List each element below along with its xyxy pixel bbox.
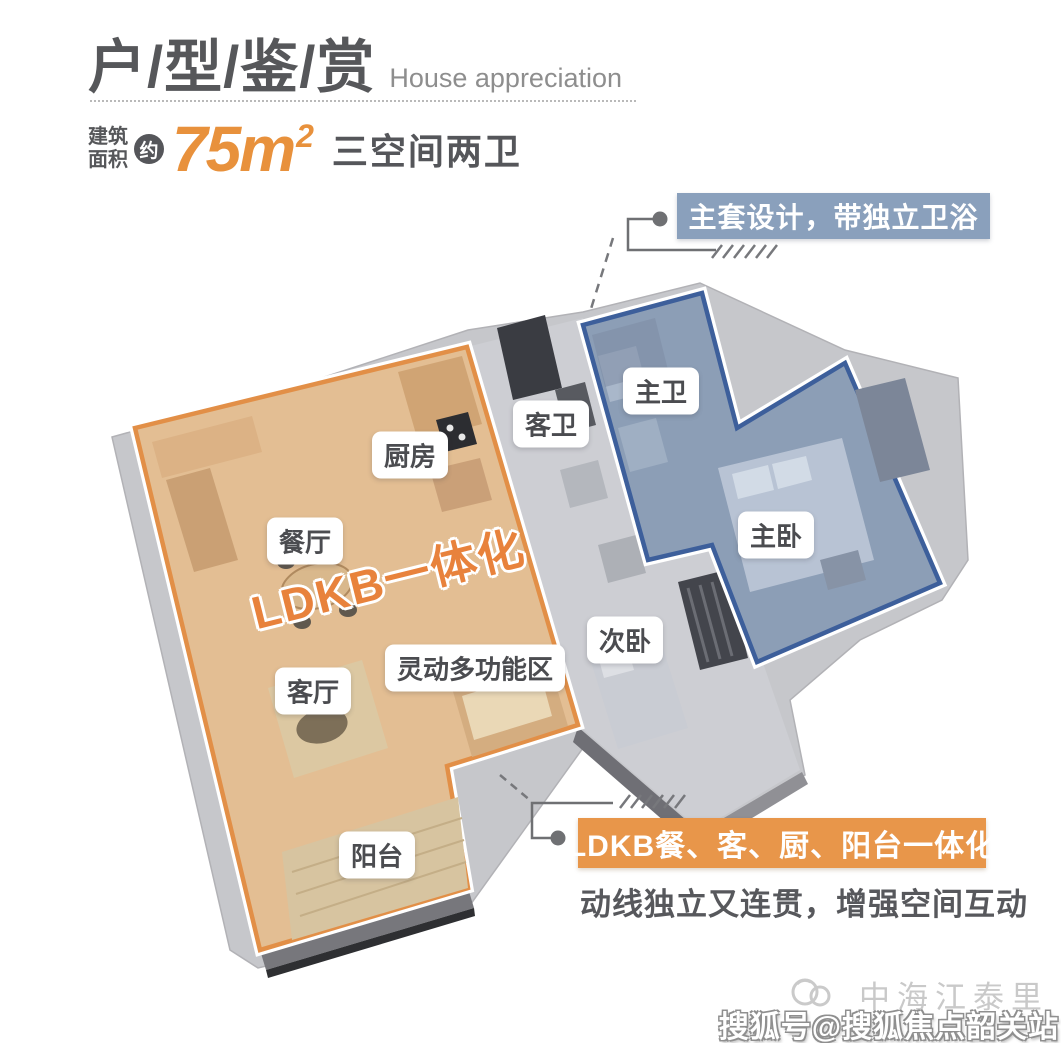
room-label-second-bed: 次卧: [587, 617, 663, 664]
callout-master-suite: 主套设计，带独立卫浴: [677, 193, 990, 239]
watermark-account: 搜狐号@搜狐焦点韶关站: [719, 1002, 1059, 1043]
caption-ldkb-sub: 动线独立又连贯，增强空间互动: [580, 879, 1020, 924]
stove-burner: [459, 434, 466, 441]
room-label-master-bath: 主卫: [623, 368, 699, 415]
room-label-master-bed: 主卧: [738, 512, 814, 559]
room-label-kitchen: 厨房: [372, 432, 448, 479]
room-label-flex-zone: 灵动多功能区: [385, 645, 565, 692]
room-label-living: 客厅: [275, 668, 351, 715]
room-label-dining: 餐厅: [267, 518, 343, 565]
room-label-guest-bath: 客卫: [513, 401, 589, 448]
stove-burner: [447, 425, 454, 432]
page-root: 户/型/鉴/赏House appreciation 建筑 面积 约 75m2 三…: [0, 0, 1061, 1043]
callout-ldkb: LDKB餐、客、厨、阳台一体化: [578, 818, 986, 868]
room-label-balcony: 阳台: [339, 832, 415, 879]
